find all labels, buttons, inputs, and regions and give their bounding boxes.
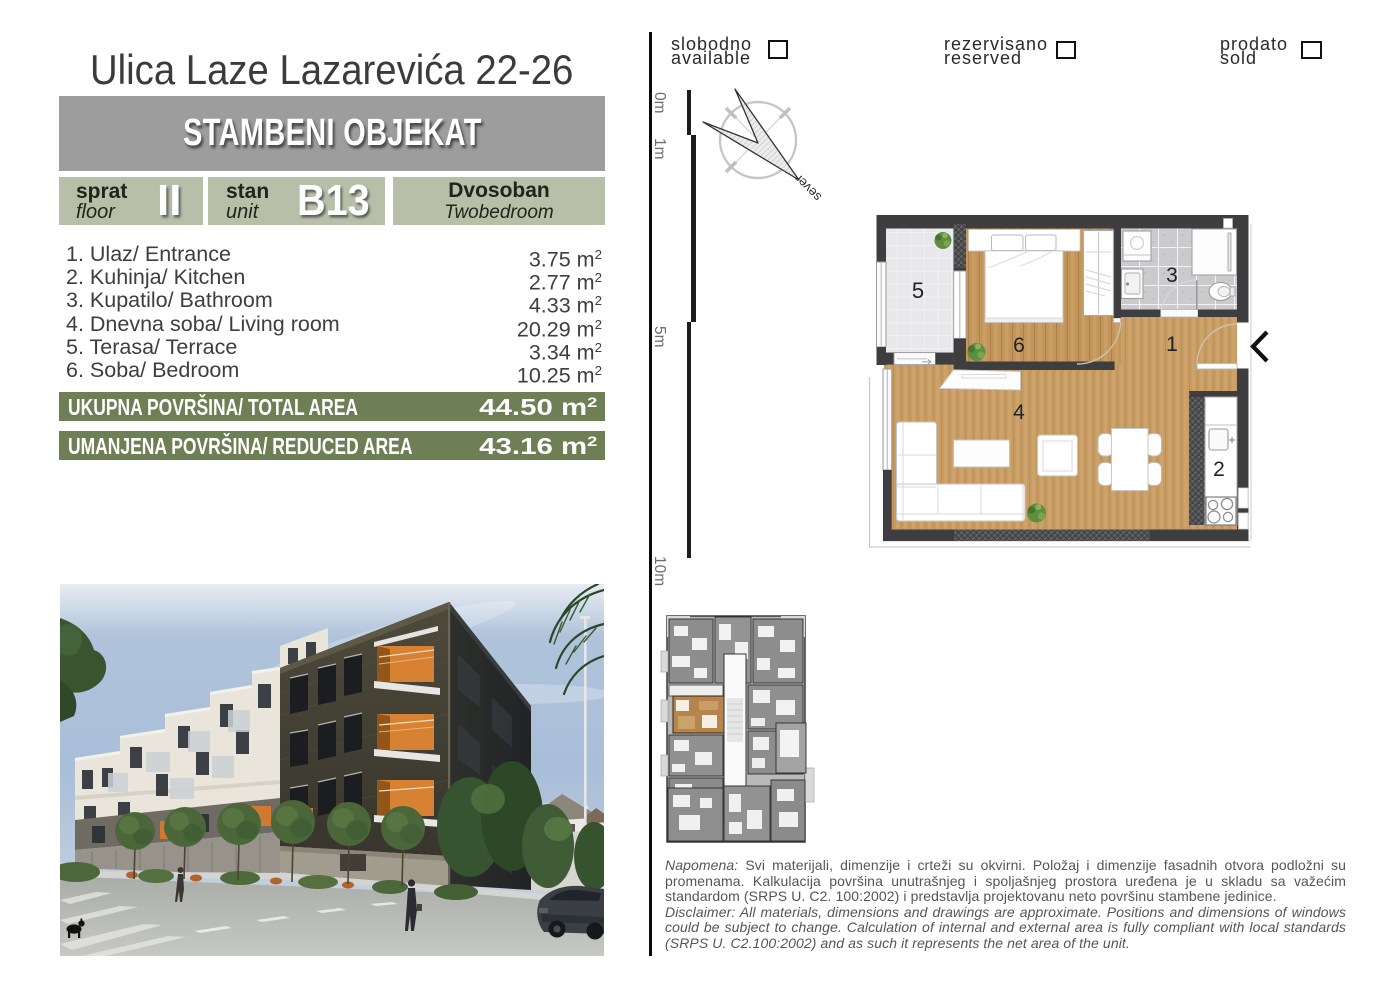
svg-text:4: 4	[1013, 401, 1025, 424]
svg-text:5: 5	[912, 278, 924, 303]
svg-text:6: 6	[1013, 334, 1025, 357]
svg-text:1: 1	[1166, 333, 1178, 356]
svg-text:2: 2	[1213, 458, 1225, 481]
svg-text:3: 3	[1166, 264, 1178, 287]
